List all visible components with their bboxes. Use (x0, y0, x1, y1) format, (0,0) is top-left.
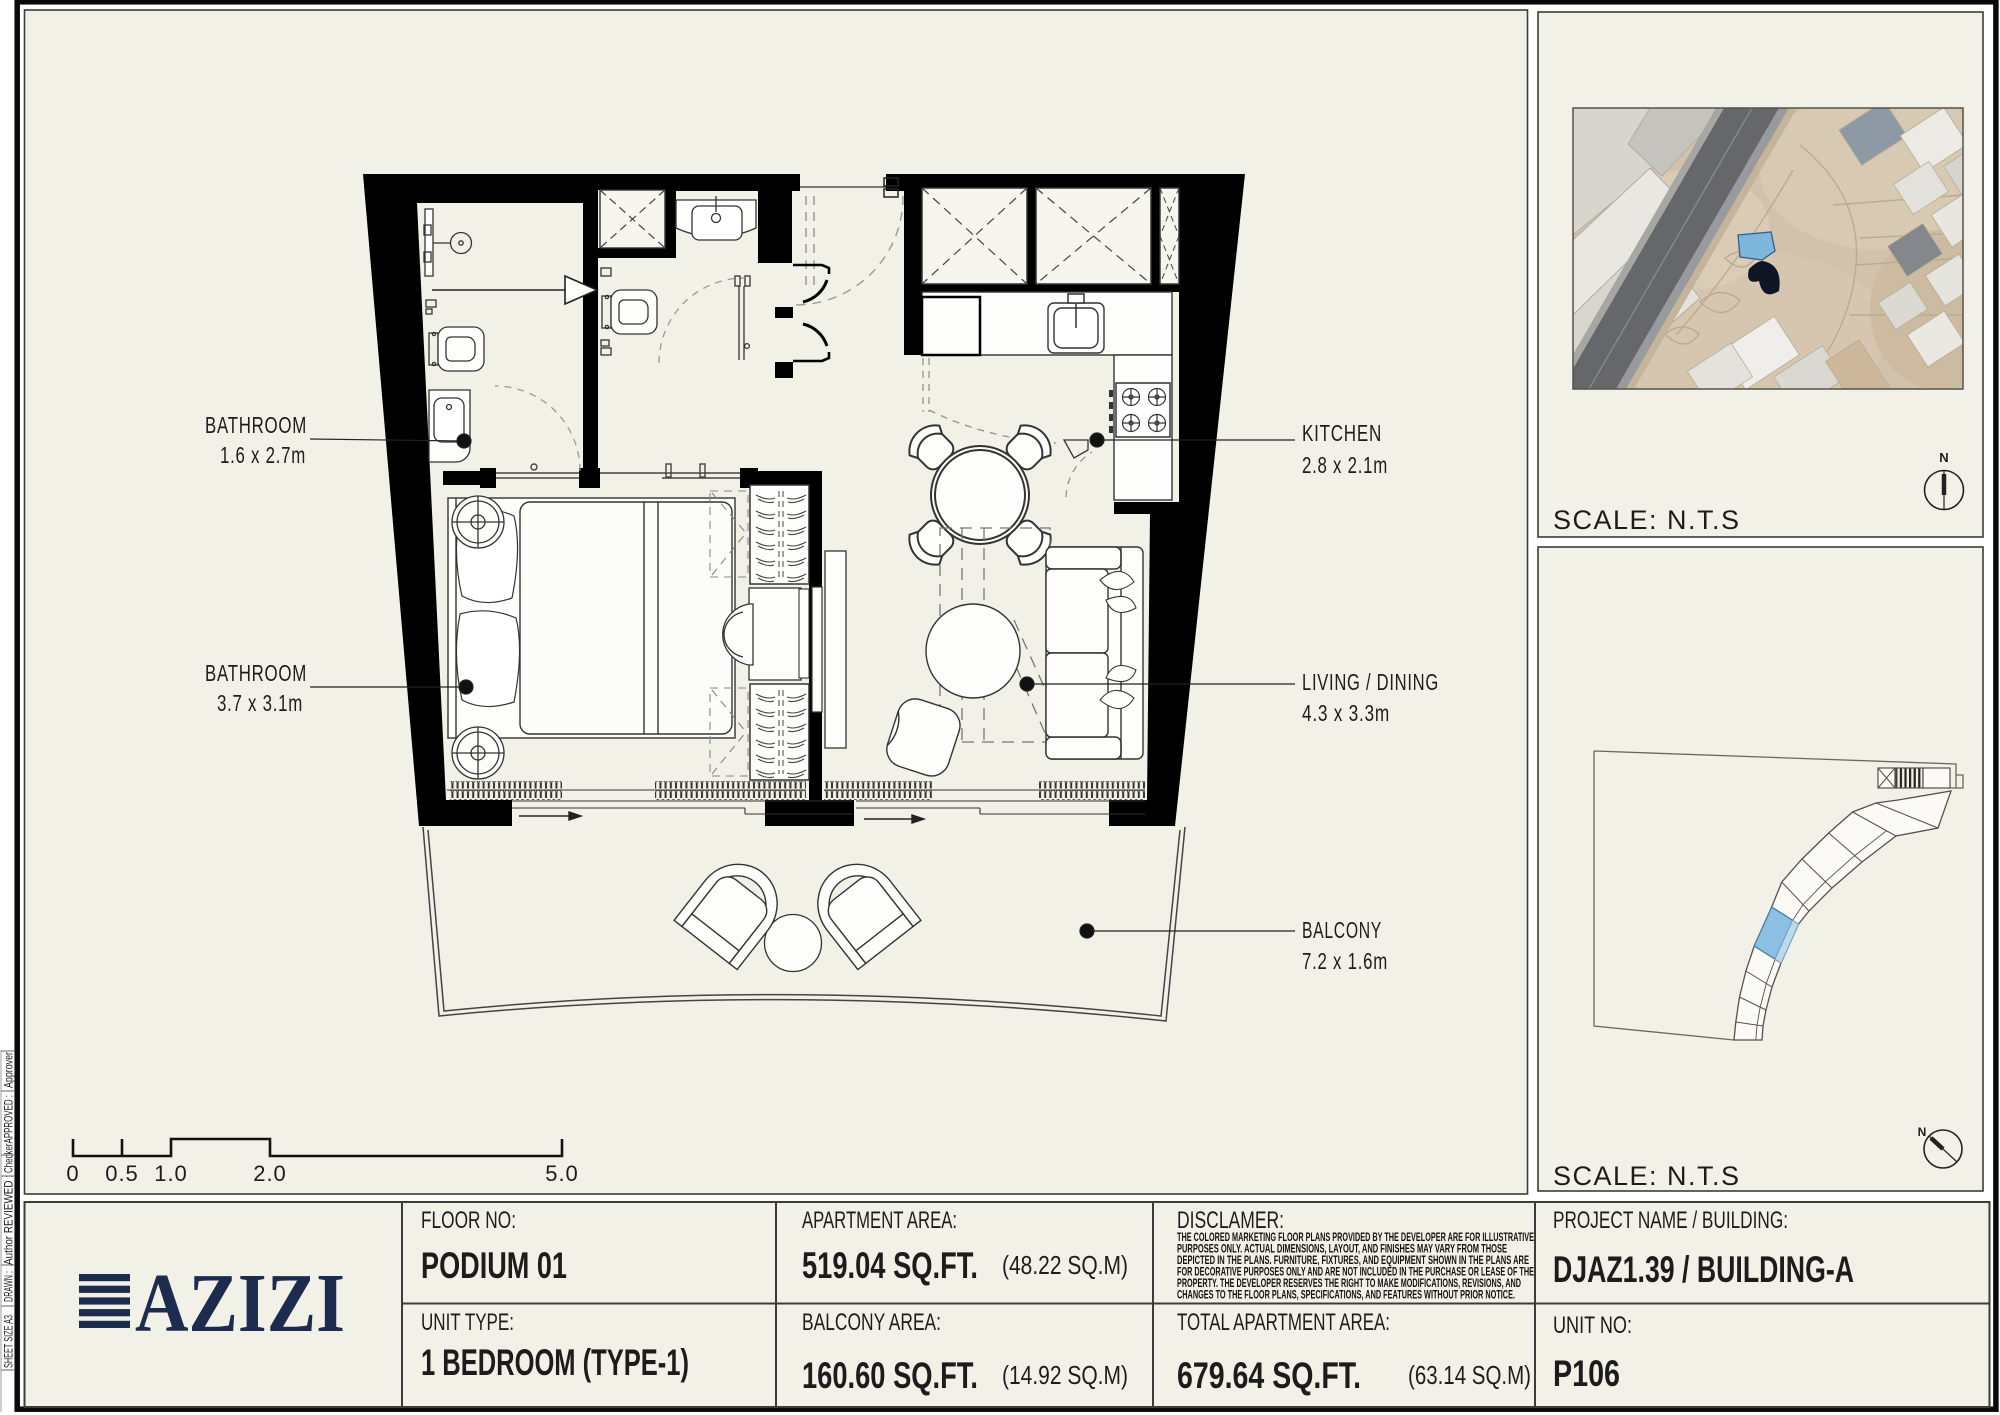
svg-text:0.5: 0.5 (105, 1161, 139, 1186)
svg-text:DJAZ1.39 / BUILDING-A: DJAZ1.39 / BUILDING-A (1553, 1249, 1854, 1290)
svg-text:(14.92 SQ.M): (14.92 SQ.M) (1002, 1360, 1128, 1390)
svg-text:160.60 SQ.FT.: 160.60 SQ.FT. (802, 1355, 978, 1396)
svg-text:2.0: 2.0 (253, 1161, 287, 1186)
svg-text:2.8 x 2.1m: 2.8 x 2.1m (1302, 452, 1388, 478)
svg-text:7.2 x 1.6m: 7.2 x 1.6m (1302, 948, 1388, 974)
svg-text:TOTAL APARTMENT AREA:: TOTAL APARTMENT AREA: (1177, 1309, 1390, 1336)
svg-text:N: N (1939, 450, 1948, 465)
svg-text:LIVING / DINING: LIVING / DINING (1302, 669, 1439, 695)
svg-text:(63.14 SQ.M): (63.14 SQ.M) (1408, 1360, 1531, 1390)
svg-text:UNIT NO:: UNIT NO: (1553, 1312, 1632, 1339)
svg-text:BATHROOM: BATHROOM (205, 412, 307, 438)
svg-text:CheckerAPPROVED :: CheckerAPPROVED : (2, 1095, 16, 1173)
svg-text:3.7 x 3.1m: 3.7 x 3.1m (217, 690, 303, 716)
svg-text:(48.22 SQ.M): (48.22 SQ.M) (1002, 1250, 1128, 1280)
svg-text:BALCONY: BALCONY (1302, 917, 1382, 943)
svg-text:P106: P106 (1553, 1353, 1620, 1394)
svg-text:N: N (1918, 1125, 1927, 1139)
svg-text:CHANGES TO THE FLOOR PLANS, SP: CHANGES TO THE FLOOR PLANS, SPECIFICATIO… (1177, 1288, 1515, 1302)
svg-text:BALCONY AREA:: BALCONY AREA: (802, 1309, 941, 1336)
svg-text:SCALE: N.T.S: SCALE: N.T.S (1553, 1161, 1741, 1191)
svg-text:Author REVIEWED :: Author REVIEWED : (2, 1175, 16, 1265)
svg-text:DRAWN :: DRAWN : (2, 1271, 16, 1302)
svg-text:5.0: 5.0 (545, 1161, 579, 1186)
svg-text:1 BEDROOM (TYPE-1): 1 BEDROOM (TYPE-1) (421, 1342, 689, 1383)
svg-text:SHEET SIZE A3: SHEET SIZE A3 (2, 1315, 16, 1368)
svg-text:SCALE: N.T.S: SCALE: N.T.S (1553, 505, 1741, 535)
svg-text:UNIT TYPE:: UNIT TYPE: (421, 1309, 514, 1336)
svg-text:Approver: Approver (2, 1052, 16, 1088)
svg-text:KITCHEN: KITCHEN (1302, 420, 1382, 446)
svg-text:PROJECT NAME / BUILDING:: PROJECT NAME / BUILDING: (1553, 1207, 1788, 1234)
svg-text:PODIUM 01: PODIUM 01 (421, 1245, 567, 1286)
svg-text:BATHROOM: BATHROOM (205, 660, 307, 686)
svg-text:FLOOR NO:: FLOOR NO: (421, 1207, 516, 1234)
svg-text:1.6 x 2.7m: 1.6 x 2.7m (220, 442, 306, 468)
svg-text:679.64 SQ.FT.: 679.64 SQ.FT. (1177, 1355, 1361, 1396)
svg-text:4.3 x 3.3m: 4.3 x 3.3m (1302, 700, 1390, 726)
svg-text:APARTMENT AREA:: APARTMENT AREA: (802, 1207, 957, 1234)
svg-text:0: 0 (66, 1161, 79, 1186)
svg-text:AZIZI: AZIZI (135, 1257, 345, 1350)
svg-text:519.04 SQ.FT.: 519.04 SQ.FT. (802, 1245, 978, 1286)
svg-text:1.0: 1.0 (154, 1161, 188, 1186)
